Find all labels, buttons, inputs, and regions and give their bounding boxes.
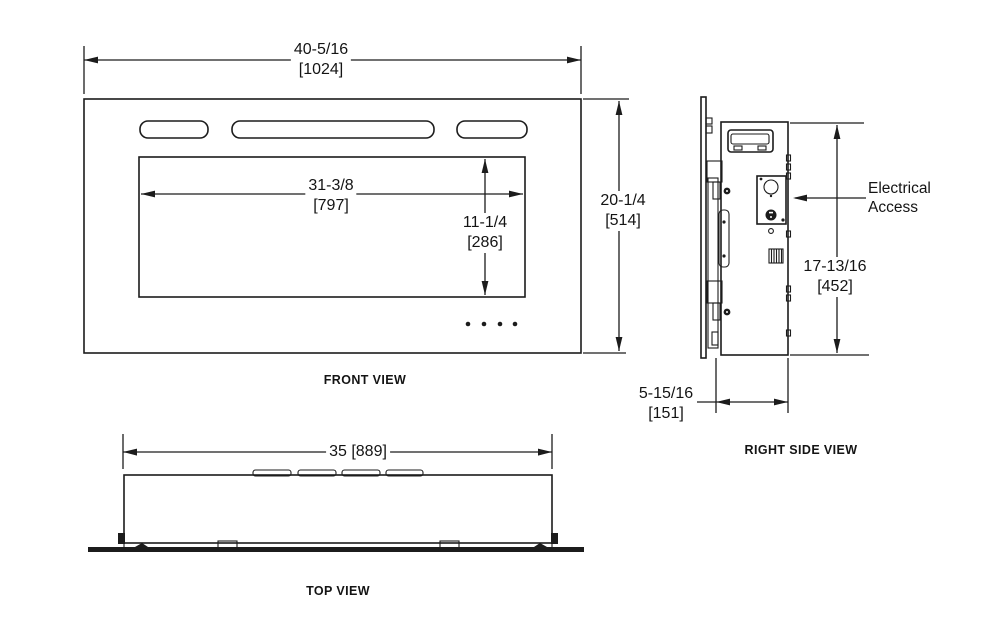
dim-window-height: 11-1/4 [286] xyxy=(460,213,510,253)
top-notch-left xyxy=(218,541,237,548)
side-electrical-panel xyxy=(757,176,786,224)
control-knob-icon xyxy=(764,180,778,194)
right-side-view-label: RIGHT SIDE VIEW xyxy=(745,443,858,457)
dim-value-combined: 35 [889] xyxy=(329,442,387,462)
side-grille xyxy=(769,249,783,263)
arrowhead-down-icon xyxy=(834,339,841,353)
arrowhead-left-icon xyxy=(716,399,730,406)
side-mounting-bracket xyxy=(707,161,730,348)
top-body xyxy=(124,475,552,543)
top-notch-right xyxy=(440,541,459,548)
side-vent-tab xyxy=(758,146,766,150)
dim-value-inches: 20-1/4 xyxy=(600,191,645,211)
side-vent-tab xyxy=(734,146,742,150)
dim-value-mm: [797] xyxy=(308,196,353,216)
dim-value-mm: [514] xyxy=(600,211,645,231)
arrowhead-down-icon xyxy=(482,281,489,295)
side-body xyxy=(721,122,788,355)
dim-front-overall-width: 40-5/16 [1024] xyxy=(291,40,351,80)
arrowhead-left-icon xyxy=(84,57,98,64)
dim-top-width: 35 [889] xyxy=(326,442,390,462)
callout-line1: Electrical xyxy=(868,179,931,198)
arrowhead-left-icon xyxy=(123,449,137,456)
arrowhead-right-icon xyxy=(567,57,581,64)
top-front-glass-flange xyxy=(88,547,584,552)
dim-side-height: 17-13/16 [452] xyxy=(800,257,869,297)
front-view-label: FRONT VIEW xyxy=(324,373,406,387)
top-left-end-tab xyxy=(118,533,125,544)
dim-value-inches: 5-15/16 xyxy=(639,384,693,404)
front-vent-right xyxy=(457,121,527,138)
right-side-view-geometry xyxy=(701,97,791,358)
dim-value-mm: [1024] xyxy=(294,60,348,80)
arrowhead-right-icon xyxy=(774,399,788,406)
dim-window-width: 31-3/8 [797] xyxy=(305,176,356,216)
side-front-flange xyxy=(701,97,706,358)
power-outlet-icon xyxy=(766,210,777,221)
dim-value-inches: 11-1/4 xyxy=(463,213,507,233)
dim-value-inches: 17-13/16 xyxy=(803,257,866,277)
arrowhead-left-icon xyxy=(793,195,807,202)
side-top-vent-inner xyxy=(731,134,769,144)
top-right-end-tab xyxy=(551,533,558,544)
front-vent-left xyxy=(140,121,208,138)
arrowhead-up-icon xyxy=(834,125,841,139)
dim-value-mm: [286] xyxy=(463,233,507,253)
side-clip-upper xyxy=(706,118,712,124)
arrowhead-down-icon xyxy=(616,337,623,351)
dim-front-overall-height: 20-1/4 [514] xyxy=(597,191,648,231)
drawing-linework xyxy=(0,0,1000,629)
arrowhead-left-icon xyxy=(141,191,155,198)
arrowhead-up-icon xyxy=(482,159,489,173)
dim-value-mm: [452] xyxy=(803,277,866,297)
fireplace-dimension-drawing: 40-5/16 [1024] 20-1/4 [514] 31-3/8 [797]… xyxy=(0,0,1000,629)
dim-value-mm: [151] xyxy=(639,404,693,424)
front-control-dots xyxy=(466,322,518,327)
top-view-geometry xyxy=(88,470,584,552)
dim-value-inches: 31-3/8 xyxy=(308,176,353,196)
arrowhead-right-icon xyxy=(509,191,523,198)
dim-value-inches: 40-5/16 xyxy=(294,40,348,60)
callout-line2: Access xyxy=(868,198,931,217)
side-clip-lower xyxy=(706,126,712,133)
electrical-access-callout: Electrical Access xyxy=(866,179,933,217)
arrowhead-right-icon xyxy=(538,449,552,456)
side-small-hole xyxy=(769,229,774,234)
front-vent-center xyxy=(232,121,434,138)
dim-side-depth: 5-15/16 [151] xyxy=(636,384,696,424)
top-view-label: TOP VIEW xyxy=(306,584,370,598)
arrowhead-up-icon xyxy=(616,101,623,115)
